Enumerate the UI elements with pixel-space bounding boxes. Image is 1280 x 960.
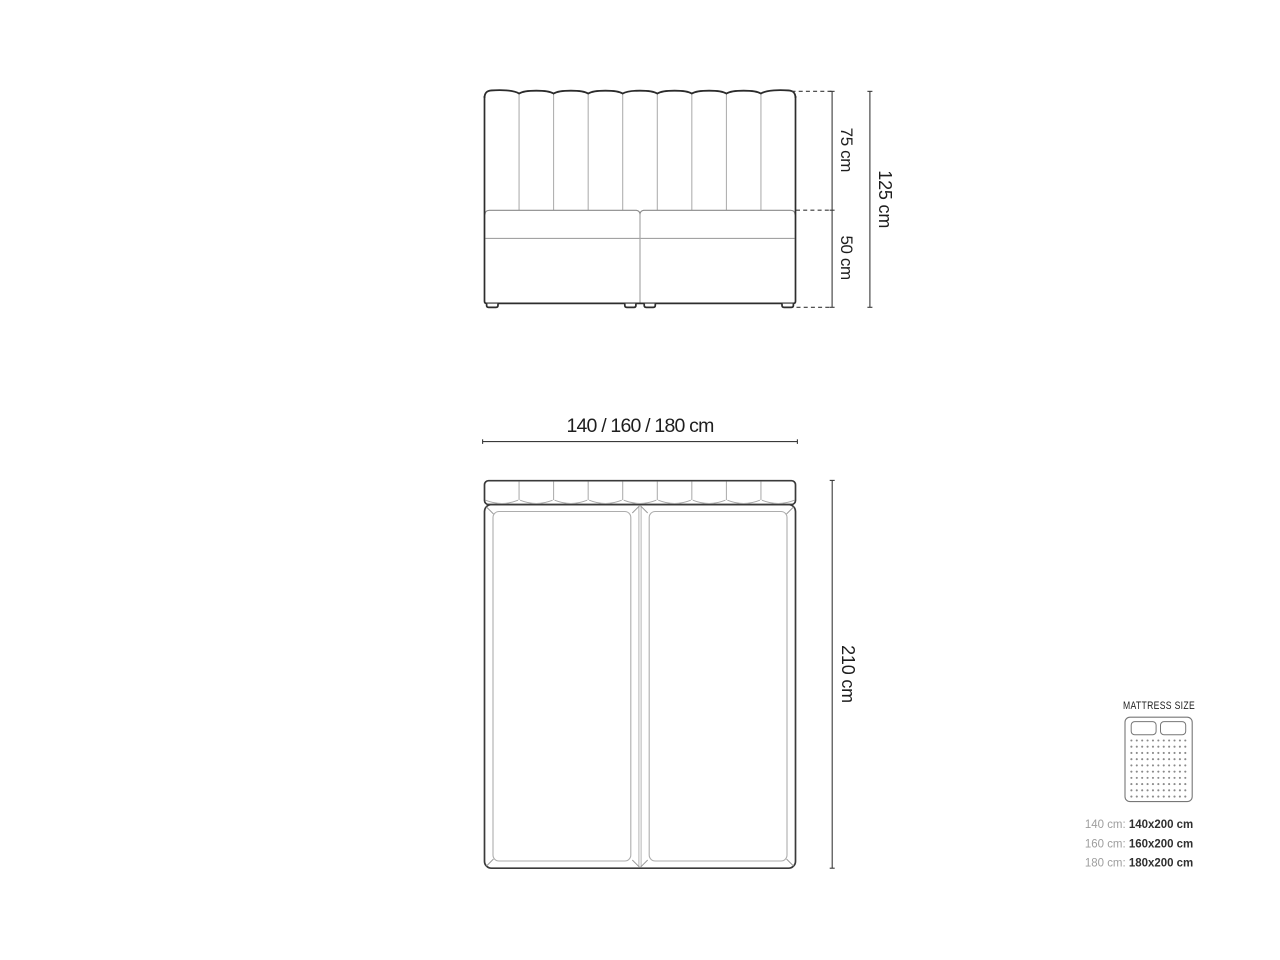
svg-text:160 cm: 160x200 cm: 160 cm: 160x200 cm [1085, 836, 1193, 850]
svg-text:MATTRESS SIZE: MATTRESS SIZE [1123, 700, 1195, 712]
svg-text:140 cm: 140x200 cm: 140 cm: 140x200 cm [1085, 817, 1193, 831]
svg-text:210 cm: 210 cm [838, 645, 858, 703]
svg-text:75 cm: 75 cm [837, 128, 856, 173]
svg-text:180 cm: 180x200 cm: 180 cm: 180x200 cm [1085, 855, 1193, 869]
svg-text:140 / 160 / 180 cm: 140 / 160 / 180 cm [566, 415, 713, 437]
svg-text:125 cm: 125 cm [875, 170, 895, 228]
svg-text:50 cm: 50 cm [837, 235, 856, 280]
